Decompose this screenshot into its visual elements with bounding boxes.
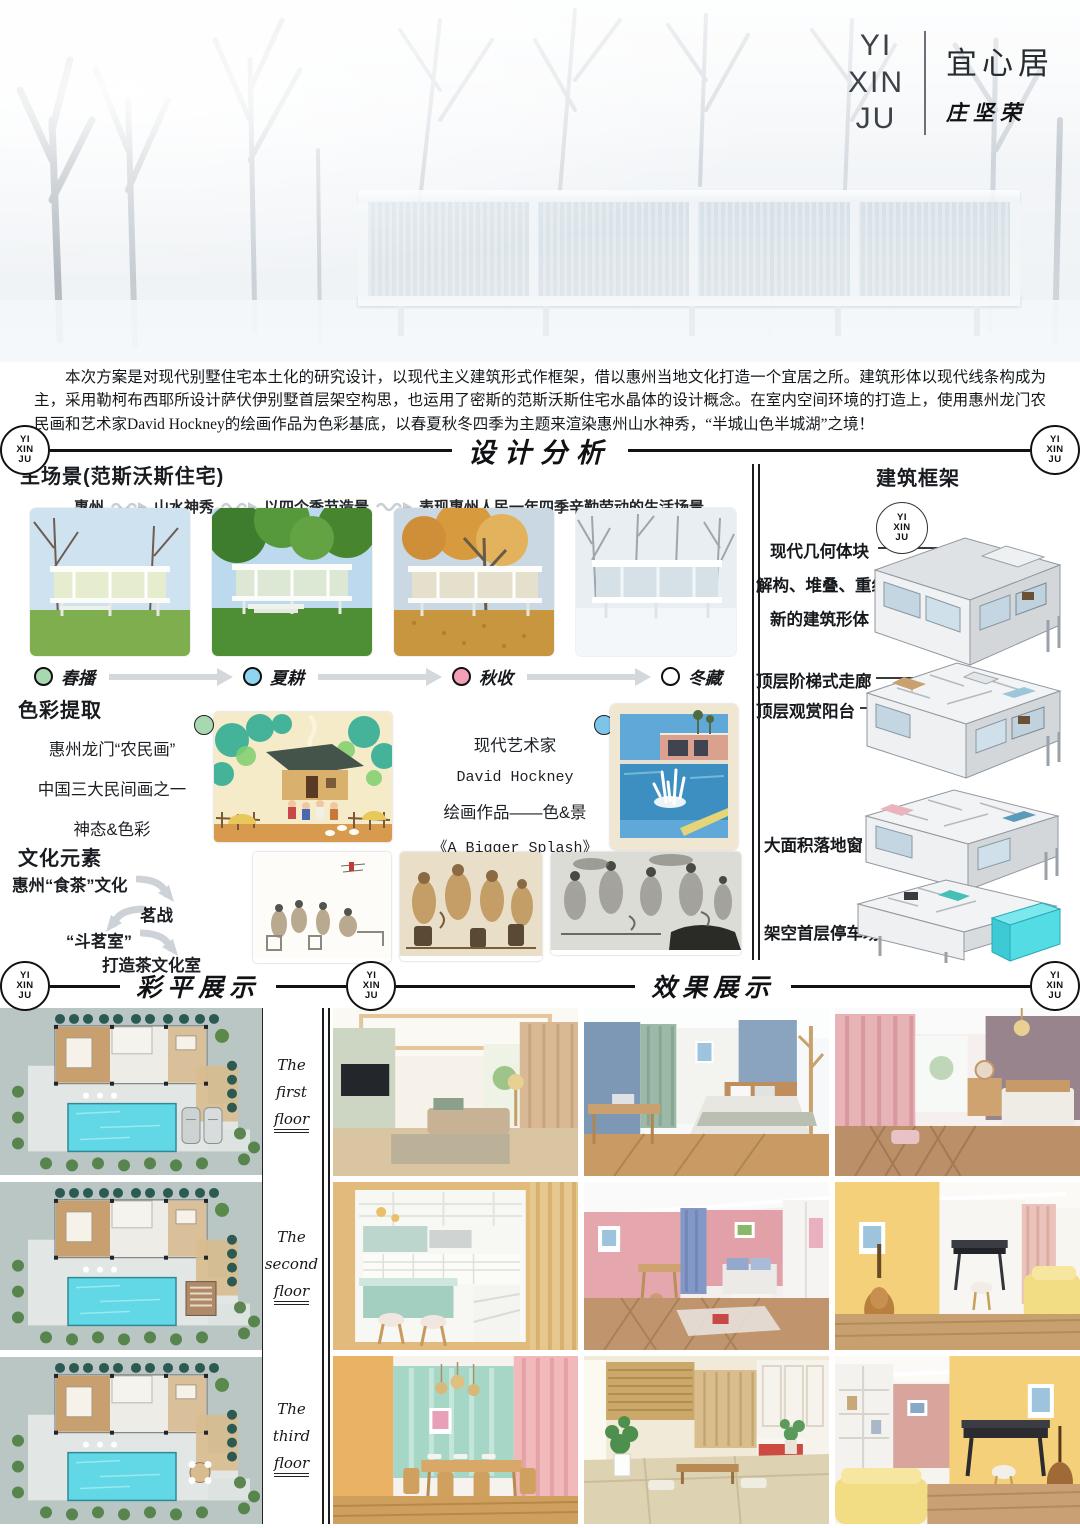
tea-culture-paintings bbox=[253, 852, 741, 963]
yixinju-badge: YIXINJU bbox=[1030, 961, 1080, 1011]
framework-heading: 建筑框架 bbox=[756, 462, 1080, 491]
render-living-room bbox=[333, 1008, 578, 1176]
framework-column: 建筑框架 YIXINJU 现代几何体块 解构、堆叠、重组 新的建筑形体 bbox=[756, 460, 1080, 964]
culture-step-3: “斗茗室” bbox=[66, 928, 132, 952]
logo-wordmark: YI XIN JU bbox=[848, 28, 904, 138]
section-divider-bottom: YIXINJU 彩平展示 YIXINJU 效果展示 YIXINJU bbox=[0, 962, 1080, 1010]
arrow-right-icon bbox=[318, 674, 426, 680]
spring-dot-icon bbox=[34, 667, 53, 686]
summer-dot-icon bbox=[243, 667, 262, 686]
season-winter: 冬藏 bbox=[661, 664, 722, 689]
floor-plan-3 bbox=[0, 1357, 262, 1524]
poster-title: 宜心居 bbox=[946, 38, 1054, 83]
yixinju-badge: YIXINJU bbox=[876, 502, 928, 554]
floor-label-1: The first floor bbox=[263, 1008, 320, 1180]
render-bedroom-pink bbox=[835, 1008, 1080, 1176]
photo-autumn-farnsworth bbox=[394, 508, 554, 656]
render-music-room bbox=[835, 1182, 1080, 1350]
season-autumn: 秋收 bbox=[452, 664, 513, 689]
render-bedroom-blue bbox=[584, 1008, 829, 1176]
ink-painting-2 bbox=[400, 852, 542, 961]
logo-divider bbox=[924, 31, 926, 135]
photo-summer-farnsworth bbox=[212, 508, 372, 656]
season-summer: 夏耕 bbox=[243, 664, 304, 689]
yixinju-badge: YIXINJU bbox=[0, 961, 50, 1011]
analysis-section: 主场景(范斯沃斯住宅) 惠州 山水神秀 以四个季节造景 表现惠州人民一年四季辛勤… bbox=[0, 460, 1080, 964]
culture-heading: 文化元素 bbox=[18, 842, 102, 871]
yixinju-badge: YIXINJU bbox=[0, 425, 50, 475]
green-color-dot-icon bbox=[194, 715, 214, 735]
fw-label-newform: 新的建筑形体 bbox=[770, 606, 869, 630]
culture-step-2: 茗战 bbox=[140, 902, 173, 926]
building-axon-4 bbox=[846, 868, 1070, 964]
logo-line-2: XIN bbox=[848, 65, 904, 102]
divider-line bbox=[628, 449, 1030, 452]
color-extract-heading: 色彩提取 bbox=[18, 694, 102, 723]
bottom-section: The first floor The second floor The thi… bbox=[0, 1008, 1080, 1524]
render-kitchen bbox=[333, 1182, 578, 1350]
arrow-right-icon bbox=[109, 674, 217, 680]
render-bedroom-pink-2 bbox=[584, 1182, 829, 1350]
section-title-plans: 彩平展示 bbox=[120, 968, 276, 1004]
ink-painting-3 bbox=[551, 852, 741, 955]
divider-line bbox=[50, 985, 120, 988]
arrow-right-icon bbox=[527, 674, 635, 680]
author-name: 庄坚荣 bbox=[946, 97, 1054, 127]
season-label-row: 春播 夏耕 秋收 冬藏 bbox=[34, 664, 722, 689]
floor-plans-column bbox=[0, 1008, 262, 1524]
photo-winter-farnsworth bbox=[576, 508, 736, 656]
yixinju-badge: YIXINJU bbox=[1030, 425, 1080, 475]
hockney-caption: 现代艺术家 David Hockney 绘画作品——色&景 《A Bigger … bbox=[424, 732, 606, 870]
folk-painting-caption: 惠州龙门“农民画” 中国三大民间画之一 神态&色彩 bbox=[18, 736, 206, 856]
fw-label-window: 大面积落地窗 bbox=[764, 832, 863, 856]
fw-label-geometry: 现代几何体块 bbox=[770, 538, 869, 562]
season-photo-row bbox=[30, 508, 736, 656]
hockney-painting-image bbox=[610, 704, 738, 850]
render-dining-room bbox=[333, 1356, 578, 1524]
folk-painting-image bbox=[214, 712, 392, 842]
floor-label-3: The third floor bbox=[263, 1352, 320, 1524]
section-title-renders: 效果展示 bbox=[635, 968, 791, 1004]
floor-label-2: The second floor bbox=[263, 1180, 320, 1352]
divider-line bbox=[276, 985, 346, 988]
yixinju-badge: YIXINJU bbox=[346, 961, 396, 1011]
floor-labels-column: The first floor The second floor The thi… bbox=[262, 1008, 320, 1524]
main-scene-heading: 主场景(范斯沃斯住宅) bbox=[20, 460, 224, 489]
logo-line-1: YI bbox=[848, 28, 904, 65]
render-music-room-2 bbox=[835, 1356, 1080, 1524]
winter-dot-icon bbox=[661, 667, 680, 686]
render-grid bbox=[333, 1008, 1080, 1524]
logo-line-3: JU bbox=[848, 101, 904, 138]
curve-arrow-down-right-icon bbox=[136, 874, 180, 904]
fw-label-balcony: 顶层观赏阳台 bbox=[756, 698, 855, 722]
divider-line bbox=[791, 985, 1030, 988]
hero-winter-photo: YI XIN JU 宜心居 庄坚荣 bbox=[0, 0, 1080, 362]
design-poster: YI XIN JU 宜心居 庄坚荣 本次方案是对现代别墅住宅本土化的研究设计，以… bbox=[0, 0, 1080, 1528]
brand-logo: YI XIN JU 宜心居 庄坚荣 bbox=[848, 28, 1054, 138]
building-axon-2 bbox=[852, 648, 1070, 798]
divider-line bbox=[50, 449, 452, 452]
floor-plan-1 bbox=[0, 1008, 262, 1175]
floor-plan-2 bbox=[0, 1182, 262, 1349]
culture-step-1: 惠州“食茶”文化 bbox=[12, 872, 128, 896]
render-tea-room bbox=[584, 1356, 829, 1524]
photo-spring-farnsworth bbox=[30, 508, 190, 656]
ink-painting-1 bbox=[253, 852, 391, 963]
autumn-dot-icon bbox=[452, 667, 471, 686]
bottom-column-divider bbox=[322, 1008, 330, 1524]
divider-line bbox=[396, 985, 635, 988]
season-spring: 春播 bbox=[34, 664, 95, 689]
